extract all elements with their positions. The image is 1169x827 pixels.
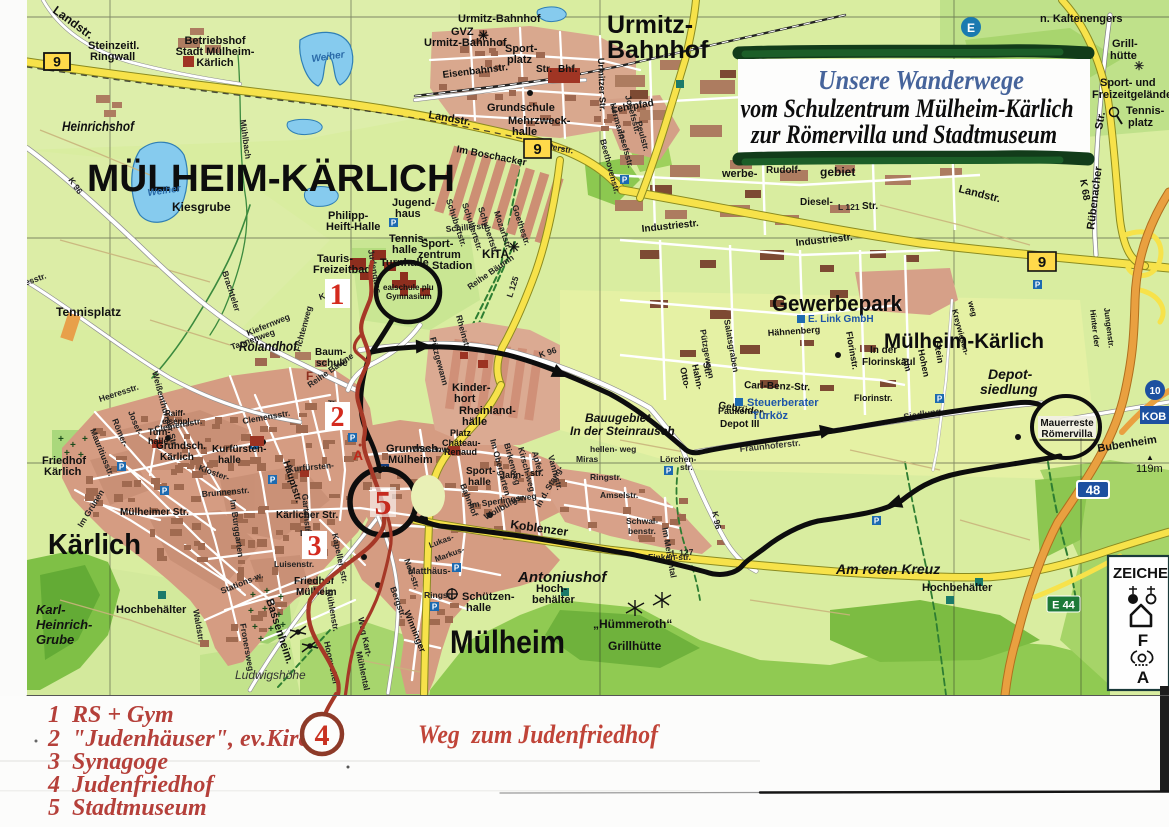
svg-text:E. Link GmbH: E. Link GmbH — [808, 314, 874, 325]
svg-text:Gewerbepark: Gewerbepark — [772, 291, 903, 316]
svg-text:Sport- und: Sport- und — [1100, 77, 1156, 89]
svg-text:Gymnasium: Gymnasium — [386, 292, 432, 301]
svg-text:Mülheimer Str.: Mülheimer Str. — [120, 507, 189, 518]
svg-text:Carl-Benz-Str.: Carl-Benz-Str. — [744, 380, 811, 393]
svg-text:platz: platz — [1128, 117, 1154, 129]
svg-text:Heift-Halle: Heift-Halle — [326, 221, 380, 233]
svg-text:Grillhütte: Grillhütte — [608, 639, 662, 653]
svg-text:Kärlich: Kärlich — [44, 466, 82, 478]
svg-text:1: 1 — [330, 278, 345, 311]
svg-text:hellen- weg: hellen- weg — [590, 444, 636, 454]
svg-text:KOB: KOB — [1142, 411, 1167, 423]
svg-text:P: P — [937, 395, 943, 404]
svg-text:Unsere Wanderwege: Unsere Wanderwege — [818, 65, 1024, 95]
svg-text:Stadion: Stadion — [432, 260, 473, 272]
svg-text:behälter: behälter — [532, 594, 576, 606]
svg-text:hütte: hütte — [1110, 50, 1137, 62]
svg-text:Amselstr.: Amselstr. — [600, 490, 638, 500]
svg-text:P: P — [622, 176, 628, 185]
svg-text:L 127: L 127 — [672, 547, 694, 558]
svg-text:Römervilla: Römervilla — [1041, 429, 1093, 440]
svg-text:5 Stadtmuseum: 5 Stadtmuseum — [48, 795, 207, 821]
svg-text:Kiesgrube: Kiesgrube — [172, 200, 231, 214]
svg-text:gebiet: gebiet — [820, 165, 855, 179]
svg-text:P: P — [454, 564, 460, 573]
svg-text:+: + — [264, 586, 270, 597]
svg-text:n. Kaltenengers: n. Kaltenengers — [1040, 13, 1123, 25]
svg-text:str.: str. — [680, 462, 693, 472]
svg-text:Ringwall: Ringwall — [90, 51, 135, 63]
svg-text:haus: haus — [395, 208, 421, 220]
svg-text:P: P — [162, 487, 168, 496]
svg-text:P: P — [350, 434, 356, 443]
svg-text:F: F — [1138, 631, 1148, 650]
svg-text:zur Römervilla und Stadtmuseum: zur Römervilla und Stadtmuseum — [750, 120, 1057, 149]
svg-text:P: P — [874, 517, 880, 526]
svg-text:Tennis-: Tennis- — [1126, 105, 1165, 117]
svg-text:platz: platz — [507, 54, 533, 66]
svg-text:Mülheim: Mülheim — [388, 454, 433, 466]
svg-text:Grundschule: Grundschule — [487, 102, 555, 114]
svg-text:Hochbehälter: Hochbehälter — [922, 582, 993, 594]
svg-text:hort: hort — [454, 393, 476, 405]
svg-text:Grill-: Grill- — [1112, 38, 1138, 50]
svg-text:+: + — [70, 440, 76, 451]
svg-text:ealschule plu: ealschule plu — [383, 283, 434, 292]
svg-text:P: P — [666, 467, 672, 476]
svg-text:Hochbehälter: Hochbehälter — [116, 604, 187, 616]
svg-text:Kärlich: Kärlich — [48, 529, 141, 561]
svg-text:P: P — [432, 603, 438, 612]
svg-text:+: + — [258, 634, 264, 645]
svg-text:halle: halle — [466, 602, 491, 614]
svg-text:Freizeitbad: Freizeitbad — [313, 264, 371, 276]
svg-text:In der: In der — [870, 345, 897, 356]
svg-text:Tennisplatz: Tennisplatz — [56, 305, 121, 319]
svg-text:2: 2 — [331, 402, 345, 433]
svg-text:+: + — [248, 606, 254, 617]
svg-text:Florinstr.: Florinstr. — [854, 393, 893, 403]
svg-text:Urmitzer Str.: Urmitzer Str. — [596, 58, 608, 112]
svg-text:P: P — [119, 463, 125, 472]
svg-text:halle: halle — [512, 126, 537, 138]
svg-text:Ludwigshöhe: Ludwigshöhe — [235, 668, 306, 682]
svg-text:Depot-: Depot- — [988, 366, 1033, 382]
svg-text:Kärlich: Kärlich — [196, 57, 234, 69]
svg-text:Diesel-: Diesel- — [800, 197, 833, 208]
svg-text:Str.: Str. — [536, 64, 552, 75]
svg-text:1 RS + Gym: 1 RS + Gym — [48, 702, 174, 728]
svg-text:Str.: Str. — [862, 201, 878, 212]
svg-text:+: + — [250, 590, 256, 601]
svg-text:hälle: hälle — [462, 416, 487, 428]
svg-text:siedlung: siedlung — [980, 381, 1038, 397]
svg-text:Ringstr.: Ringstr. — [590, 472, 622, 482]
svg-text:„Hümmeroth“: „Hümmeroth“ — [593, 617, 672, 631]
svg-text:+: + — [252, 622, 258, 633]
svg-text:5: 5 — [375, 485, 392, 522]
svg-text:Mauerreste: Mauerreste — [1040, 418, 1094, 429]
svg-text:Mülheim: Mülheim — [450, 624, 565, 660]
svg-text:+: + — [82, 434, 88, 445]
svg-text:halle: halle — [468, 477, 491, 488]
svg-text:MÜLHEIM-KÄRLICH: MÜLHEIM-KÄRLICH — [87, 157, 455, 200]
svg-text:9: 9 — [533, 141, 541, 158]
svg-text:Kurfürsten-: Kurfürsten- — [212, 444, 266, 455]
svg-text:Rudolf-: Rudolf- — [766, 165, 801, 176]
svg-text:Urmitz-Bahnhof: Urmitz-Bahnhof — [458, 13, 541, 25]
svg-text:Heinrich-: Heinrich- — [36, 617, 92, 632]
svg-text:4: 4 — [315, 719, 330, 752]
svg-text:vom Schulzentrum Mülheim-Kärli: vom Schulzentrum Mülheim-Kärlich — [741, 94, 1074, 123]
svg-text:Ringstr.: Ringstr. — [424, 590, 456, 600]
svg-text:9: 9 — [1038, 254, 1046, 271]
svg-text:Kärlich: Kärlich — [160, 452, 194, 463]
svg-text:halle: halle — [392, 244, 417, 256]
svg-text:Freizeitgelände: Freizeitgelände — [1092, 89, 1169, 101]
svg-text:L 121: L 121 — [838, 202, 860, 212]
svg-text:Sport-: Sport- — [466, 466, 495, 477]
svg-text:9: 9 — [53, 54, 61, 70]
svg-text:Bhf.: Bhf. — [558, 64, 578, 75]
svg-text:Platz: Platz — [450, 428, 472, 438]
svg-text:benstr.: benstr. — [628, 526, 656, 536]
svg-text:A: A — [353, 447, 363, 463]
svg-text:Am roten Kreuz: Am roten Kreuz — [835, 561, 940, 577]
svg-text:Weg zum Judenfriedhof: Weg zum Judenfriedhof — [418, 720, 660, 749]
svg-text:Steuerberater: Steuerberater — [747, 397, 819, 409]
svg-text:Miras: Miras — [576, 454, 598, 464]
svg-text:119m: 119m — [1136, 463, 1163, 475]
svg-text:Grube: Grube — [36, 632, 74, 647]
svg-text:+: + — [278, 592, 284, 603]
svg-text:3: 3 — [308, 531, 322, 562]
svg-text:halle: halle — [218, 455, 241, 466]
svg-text:Türköz: Türköz — [752, 410, 789, 422]
svg-text:werbe-: werbe- — [721, 168, 758, 180]
svg-text:●: ● — [358, 442, 362, 449]
svg-text:+: + — [58, 434, 64, 445]
svg-text:Wiesenw.: Wiesenw. — [412, 444, 450, 454]
svg-text:A: A — [1137, 668, 1149, 687]
svg-text:Karl-: Karl- — [36, 602, 66, 617]
svg-text:10: 10 — [1149, 386, 1161, 397]
svg-text:halle: halle — [148, 436, 169, 446]
svg-text:Schwal-: Schwal- — [626, 516, 658, 526]
svg-text:Bahnhof: Bahnhof — [607, 36, 709, 64]
svg-text:Urmitz-Bahnhof: Urmitz-Bahnhof — [424, 37, 507, 49]
svg-text:E 44: E 44 — [1052, 600, 1076, 612]
svg-text:P: P — [270, 476, 276, 485]
svg-text:P: P — [1035, 281, 1041, 290]
svg-text:Heinrichshof: Heinrichshof — [62, 118, 135, 134]
svg-text:ZEICHEN: ZEICHEN — [1113, 565, 1169, 582]
svg-text:48: 48 — [1086, 483, 1100, 498]
svg-text:E: E — [967, 21, 975, 35]
svg-text:▲: ▲ — [1146, 453, 1154, 462]
svg-text:Urmitz-: Urmitz- — [607, 11, 693, 39]
